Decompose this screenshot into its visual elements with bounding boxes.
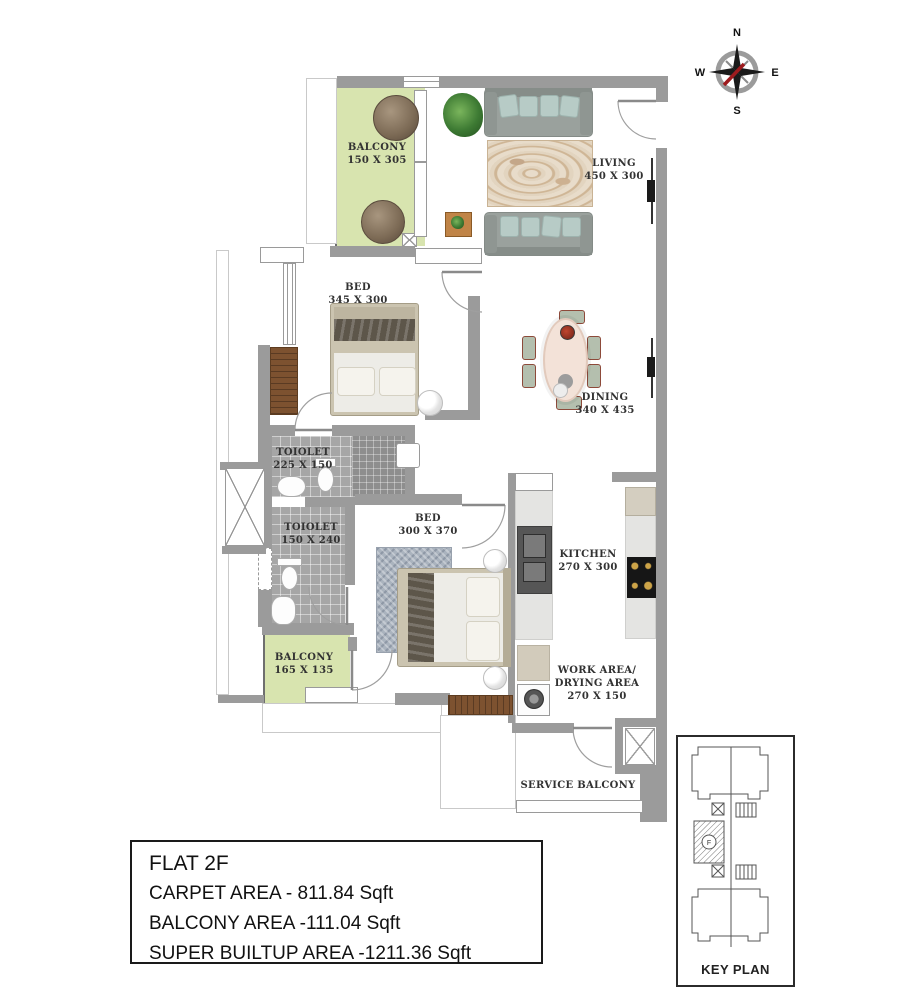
room-name: TOIOLET bbox=[281, 521, 340, 534]
compass: N S W E bbox=[693, 24, 785, 116]
dining-chair bbox=[587, 364, 601, 388]
compass-point-east bbox=[737, 68, 765, 76]
wall-bottom-right-chunk bbox=[640, 774, 667, 822]
bed2-headboard bbox=[503, 568, 511, 667]
room-name: TOIOLET bbox=[273, 446, 332, 459]
key-plan-label: KEY PLAN bbox=[678, 962, 793, 977]
sofa-cushion bbox=[562, 217, 581, 237]
bed1-head-band bbox=[334, 307, 415, 319]
wall-shaft2-bottom bbox=[615, 765, 667, 774]
flat-title: FLAT 2F bbox=[149, 849, 541, 879]
label-toilet1: TOIOLET 225 X 150 bbox=[273, 446, 332, 472]
compass-ring bbox=[718, 53, 756, 91]
room-dims: 345 X 300 bbox=[328, 294, 387, 307]
room-name: SERVICE BALCONY bbox=[521, 779, 636, 792]
room-name: LIVING bbox=[584, 157, 643, 170]
door-arc-service-balcony bbox=[573, 728, 612, 767]
bed2-side-table-top bbox=[483, 549, 507, 573]
compass-needle bbox=[724, 64, 744, 85]
dining-chair bbox=[587, 336, 601, 360]
bed1-blanket bbox=[334, 319, 415, 341]
bed2-pillow-top bbox=[466, 577, 500, 617]
room-name: BALCONY bbox=[347, 141, 406, 154]
living-rug bbox=[487, 140, 593, 207]
sofa-bottom-arm-left bbox=[485, 215, 497, 253]
area-info-box: FLAT 2F CARPET AREA - 811.84 Sqft BALCON… bbox=[130, 840, 543, 964]
wall-workarea-bottom bbox=[512, 723, 574, 733]
compass-label-e: E bbox=[771, 67, 778, 79]
toilet1-door-gap bbox=[295, 425, 332, 436]
toilet2-wc-bowl bbox=[281, 566, 298, 590]
ledge-bottom-mid bbox=[440, 715, 516, 809]
bed1-window bbox=[283, 263, 296, 345]
key-plan-bottom-wing bbox=[692, 889, 768, 941]
wall-kitchen-stub bbox=[612, 472, 656, 482]
wall-balcony2-top bbox=[262, 623, 354, 635]
hallway-cabinet bbox=[396, 443, 420, 468]
balcony-chair-2 bbox=[361, 200, 405, 244]
room-name: KITCHEN bbox=[558, 548, 617, 561]
door-arc-entrance bbox=[618, 101, 656, 139]
dining-plate-white bbox=[553, 383, 568, 398]
service-balcony-railing bbox=[516, 800, 643, 813]
tv-living bbox=[647, 180, 655, 202]
bed1-side-table bbox=[417, 390, 443, 416]
wall-living-top bbox=[440, 76, 668, 88]
wall-balcony2-right-stub bbox=[348, 637, 357, 651]
room-dims: 150 X 305 bbox=[347, 154, 406, 167]
label-living: LIVING 450 X 300 bbox=[584, 157, 643, 183]
bed2-pillow-bottom bbox=[466, 621, 500, 661]
label-dining: DINING 340 X 435 bbox=[575, 391, 634, 417]
bed1-window-sill bbox=[260, 247, 304, 263]
compass-minor-nw bbox=[726, 61, 737, 72]
wall-shaft2-left bbox=[615, 727, 623, 767]
ledge-bottom-left bbox=[262, 703, 442, 733]
key-plan-top-wing bbox=[692, 747, 768, 799]
plant-small bbox=[451, 216, 464, 229]
room-name: WORK AREA/ bbox=[555, 664, 639, 677]
wall-bed1-right bbox=[468, 296, 480, 416]
label-work-area: WORK AREA/ DRYING AREA 270 X 150 bbox=[555, 664, 639, 703]
kitchen-sink-basin-1 bbox=[523, 534, 546, 558]
bed2-side-table-bottom bbox=[483, 666, 507, 690]
compass-label-n: N bbox=[733, 27, 741, 39]
sofa-bottom-back bbox=[485, 247, 592, 255]
balcony-chair-1 bbox=[373, 95, 419, 141]
compass-minor-ne bbox=[737, 61, 748, 72]
key-plan-stair-1 bbox=[736, 803, 756, 817]
room-dims: 270 X 300 bbox=[558, 561, 617, 574]
bed2-blanket bbox=[408, 573, 434, 662]
sliding-door-panel-2 bbox=[414, 162, 427, 237]
wall-balcony-bottom bbox=[330, 246, 415, 257]
label-service-balcony: SERVICE BALCONY bbox=[521, 779, 636, 792]
room-dims: 450 X 300 bbox=[584, 170, 643, 183]
dining-centerpiece bbox=[560, 325, 575, 340]
label-bed1: BED 345 X 300 bbox=[328, 281, 387, 307]
wardrobe-bed2 bbox=[448, 695, 513, 715]
room-dims: 270 X 150 bbox=[555, 690, 639, 703]
compass-point-north bbox=[733, 44, 741, 72]
wall-toilet1-top bbox=[258, 425, 408, 436]
sofa-cushion bbox=[500, 216, 519, 237]
wall-balcony-top bbox=[337, 76, 403, 88]
bed1-pillow-left bbox=[337, 367, 375, 396]
wall-shaft2-top bbox=[615, 718, 667, 727]
carpet-area-line: CARPET AREA - 811.84 Sqft bbox=[149, 879, 541, 909]
balcony-area-line: BALCONY AREA -111.04 Sqft bbox=[149, 909, 541, 939]
ledge-top-left bbox=[306, 78, 337, 244]
bed1-pillow-right bbox=[379, 367, 416, 396]
sofa-cushion bbox=[498, 94, 520, 118]
sofa-top-arm-right bbox=[580, 92, 592, 135]
key-plan-drawing: F bbox=[678, 741, 793, 959]
key-plan-flat-marker: F bbox=[707, 840, 711, 847]
sofa-cushion bbox=[540, 95, 559, 117]
label-bed2: BED 300 X 370 bbox=[398, 512, 457, 538]
room-dims: 165 X 135 bbox=[274, 664, 333, 677]
key-plan-stair-2 bbox=[736, 865, 756, 879]
balcony2-sill bbox=[305, 687, 358, 703]
toilet2-wc-tank bbox=[277, 558, 302, 566]
toilet2-door-gap bbox=[345, 585, 355, 627]
label-balcony-top: BALCONY 150 X 305 bbox=[347, 141, 406, 167]
work-counter bbox=[517, 645, 550, 681]
fridge bbox=[625, 487, 656, 516]
shaft-right bbox=[625, 728, 655, 765]
label-balcony-bottom: BALCONY 165 X 135 bbox=[274, 651, 333, 677]
bed1-door-jamb bbox=[415, 248, 482, 264]
floor-plan-page: N S W E BALCONY 150 X 305 LIVING 450 X 3… bbox=[0, 0, 900, 1008]
toilet2-vent-window bbox=[258, 548, 272, 590]
sofa-bottom-arm-right bbox=[580, 215, 592, 253]
room-name: DRYING AREA bbox=[555, 677, 639, 690]
super-builtup-area-line: SUPER BUILTUP AREA -1211.36 Sqft bbox=[149, 939, 541, 969]
room-dims: 225 X 150 bbox=[273, 459, 332, 472]
wall-bed2-top bbox=[355, 494, 462, 505]
kitchen-counter-top-box bbox=[515, 473, 553, 491]
room-name: DINING bbox=[575, 391, 634, 404]
balcony-bottom-edge-line bbox=[263, 635, 265, 703]
shaft-left bbox=[225, 468, 265, 546]
sofa-cushion bbox=[519, 96, 538, 117]
label-kitchen: KITCHEN 270 X 300 bbox=[558, 548, 617, 574]
room-dims: 340 X 435 bbox=[575, 404, 634, 417]
washing-machine-drum bbox=[524, 689, 544, 709]
label-toilet2: TOIOLET 150 X 240 bbox=[281, 521, 340, 547]
wall-shaft-bottom bbox=[222, 546, 266, 554]
compass-label-w: W bbox=[695, 67, 706, 79]
kitchen-sink-basin-2 bbox=[523, 562, 546, 582]
room-name: BED bbox=[328, 281, 387, 294]
compass-minor-se bbox=[737, 72, 748, 83]
compass-point-west bbox=[709, 68, 737, 76]
room-name: BED bbox=[398, 512, 457, 525]
key-plan-box: F KEY PLAN bbox=[676, 735, 795, 987]
compass-point-south bbox=[733, 72, 741, 100]
toilet2-sink bbox=[271, 596, 296, 625]
window-top bbox=[403, 76, 440, 88]
dining-chair bbox=[522, 364, 536, 388]
compass-minor-sw bbox=[726, 72, 737, 83]
room-dims: 150 X 240 bbox=[281, 534, 340, 547]
plant-large bbox=[443, 93, 483, 137]
door-arc-bed2 bbox=[462, 505, 505, 548]
door-arc-balcony2 bbox=[352, 650, 392, 690]
tv-dining bbox=[647, 357, 655, 377]
wall-bed1-left bbox=[258, 345, 270, 425]
wall-entrance-step bbox=[656, 88, 668, 102]
room-dims: 300 X 370 bbox=[398, 525, 457, 538]
toilet1-sink bbox=[277, 476, 306, 497]
wall-bed2-bottom bbox=[395, 693, 450, 705]
sofa-top-arm-left bbox=[485, 92, 497, 135]
wardrobe-bed1 bbox=[270, 347, 298, 415]
dining-chair bbox=[522, 336, 536, 360]
room-name: BALCONY bbox=[274, 651, 333, 664]
sofa-cushion bbox=[541, 215, 562, 238]
compass-label-s: S bbox=[733, 105, 740, 116]
stove bbox=[627, 557, 656, 598]
sofa-cushion bbox=[559, 95, 580, 118]
wall-right-main bbox=[656, 148, 667, 721]
wall-bottom-left-bar bbox=[218, 695, 264, 703]
sofa-cushion bbox=[521, 217, 540, 237]
